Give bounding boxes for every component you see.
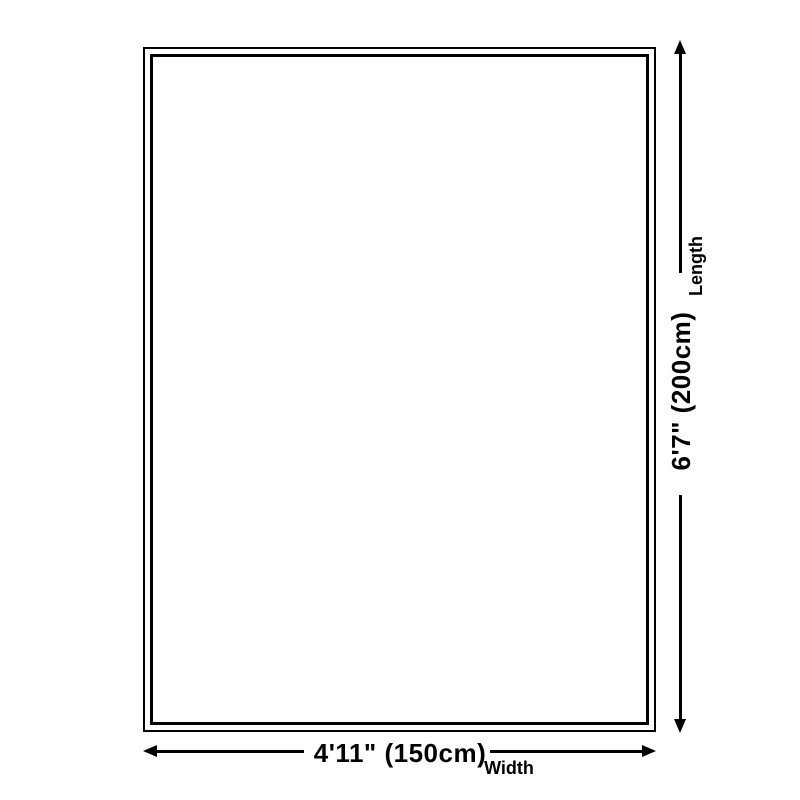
width-arrow-line-left — [155, 750, 304, 753]
width-value-label: 4'11" (150cm) — [314, 740, 486, 766]
width-axis-label: Width — [484, 759, 534, 777]
product-size-diagram: Length 6'7" (200cm) 4'11" (150cm) Width — [0, 0, 800, 800]
width-dimension: 4'11" (150cm) Width — [0, 0, 800, 800]
width-arrow-line-right — [490, 750, 643, 753]
arrow-right-icon — [642, 745, 656, 757]
